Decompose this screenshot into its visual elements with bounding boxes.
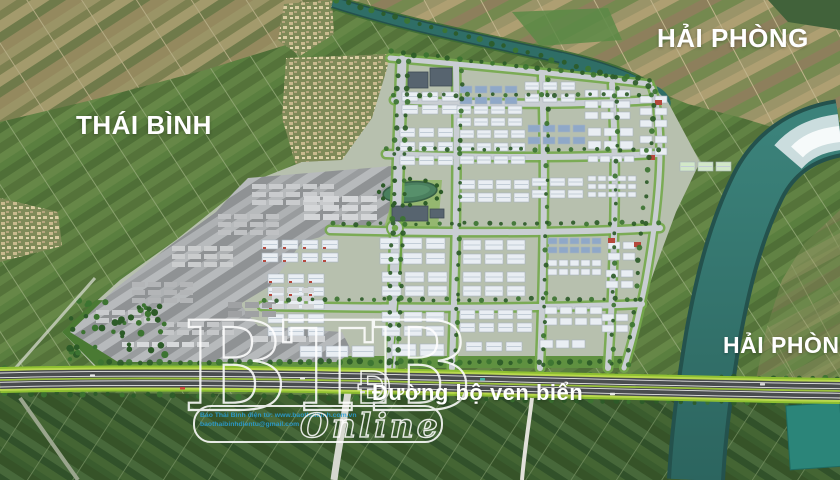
label-coastal-road: Đường bộ ven biển — [372, 380, 583, 406]
aerial-scene — [0, 0, 840, 480]
label-thai-binh: THÁI BÌNH — [76, 110, 212, 141]
aerial-masterplan-image: BTB Báo Thái Bình điện tử: www.baothaibi… — [0, 0, 840, 480]
label-hai-phong-top: HẢI PHÒNG — [657, 23, 809, 54]
label-hai-phong-right: HẢI PHÒNG — [723, 332, 840, 359]
